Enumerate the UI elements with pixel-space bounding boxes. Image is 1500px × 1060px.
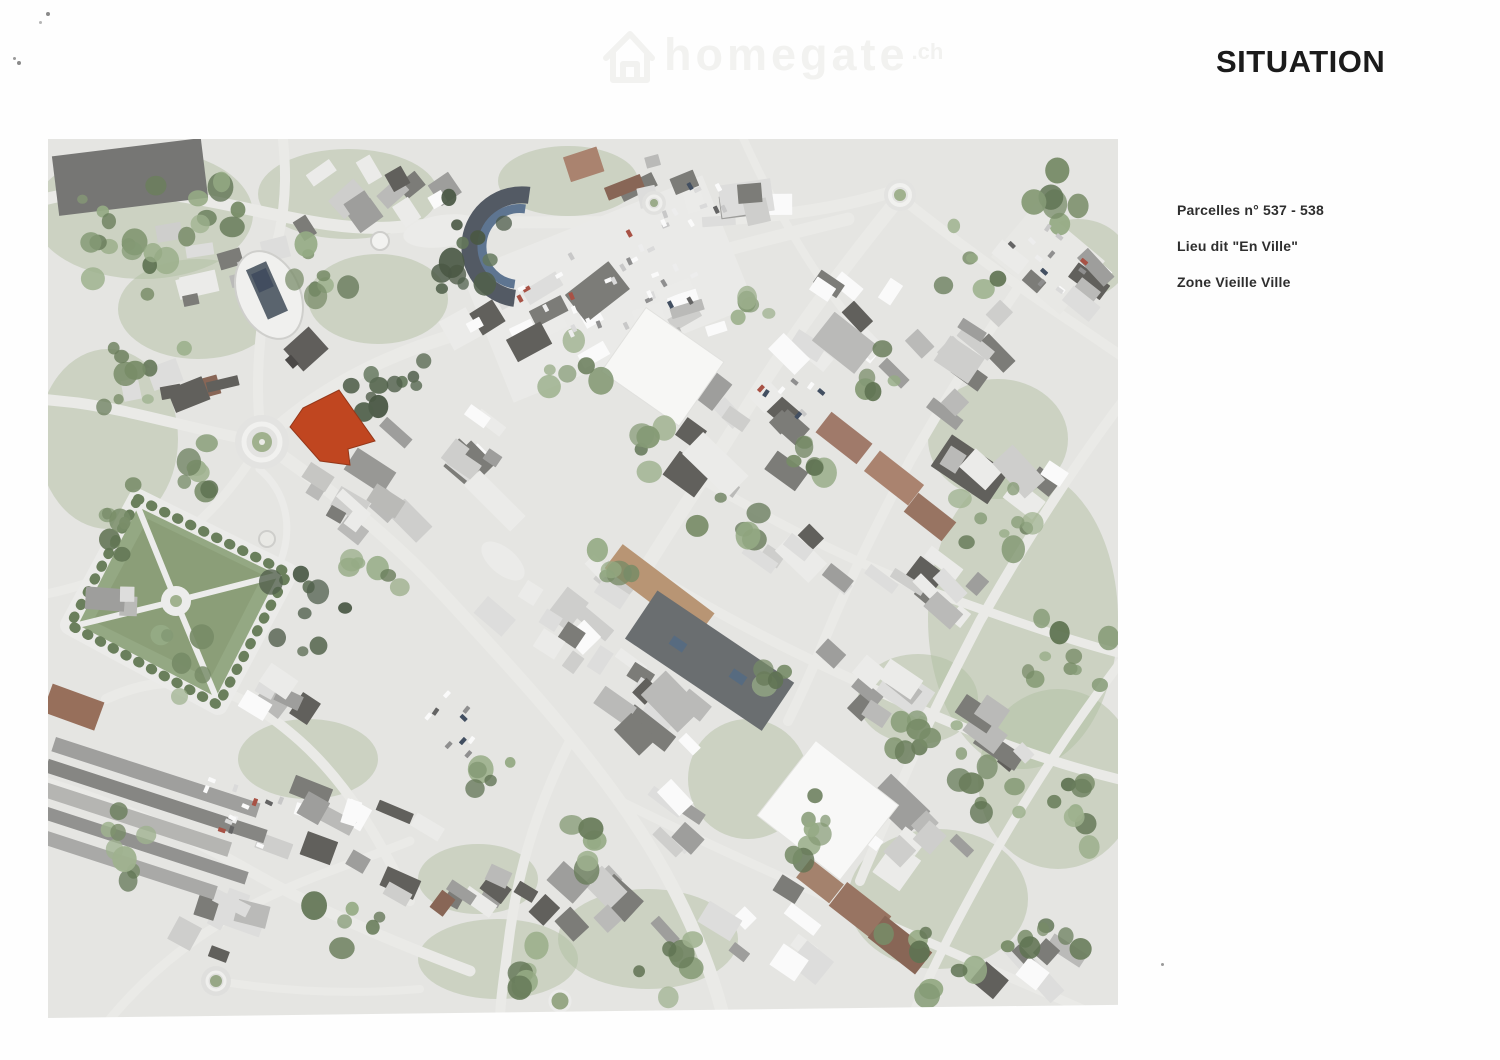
page-title: SITUATION — [1216, 44, 1385, 80]
aerial-photo — [48, 139, 1118, 1018]
homegate-watermark: homegate .ch — [592, 22, 943, 88]
watermark-tld: .ch — [912, 22, 944, 82]
annotation-zone: Zone Vieille Ville — [1177, 274, 1324, 290]
scan-speck — [39, 21, 42, 24]
annotation-lieu-dit: Lieu dit "En Ville" — [1177, 238, 1324, 254]
scan-speck — [1161, 963, 1164, 966]
homegate-house-icon — [592, 22, 664, 88]
watermark-brand: homegate — [664, 22, 909, 88]
scan-wash — [48, 139, 1118, 1018]
annotation-parcelles: Parcelles n° 537 - 538 — [1177, 202, 1324, 218]
scan-speck — [46, 12, 50, 16]
scan-speck — [17, 61, 21, 65]
scan-speck — [13, 57, 16, 60]
parcel-annotations: Parcelles n° 537 - 538 Lieu dit "En Vill… — [1177, 202, 1324, 310]
aerial-situation-map — [48, 139, 1118, 1018]
situation-plan-page: homegate .ch SITUATION — [0, 0, 1500, 1060]
